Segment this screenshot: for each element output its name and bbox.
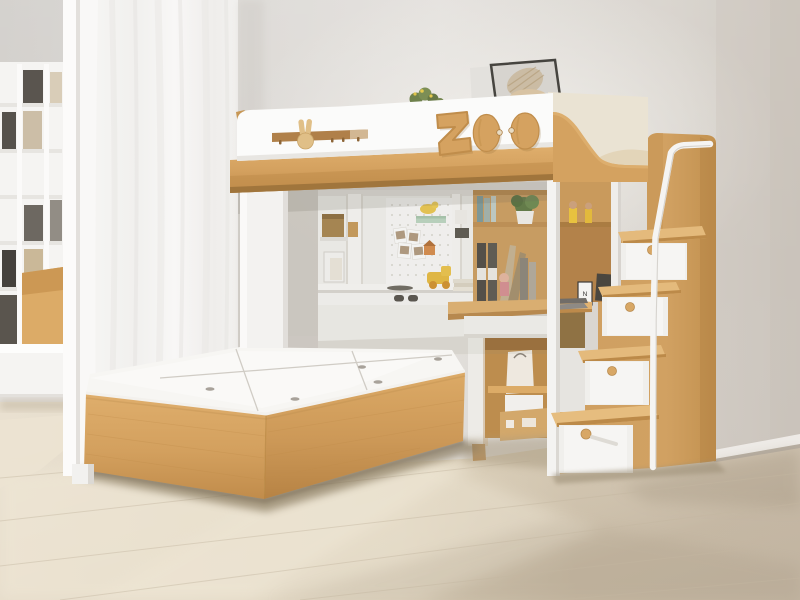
svg-text:N: N xyxy=(583,291,588,298)
